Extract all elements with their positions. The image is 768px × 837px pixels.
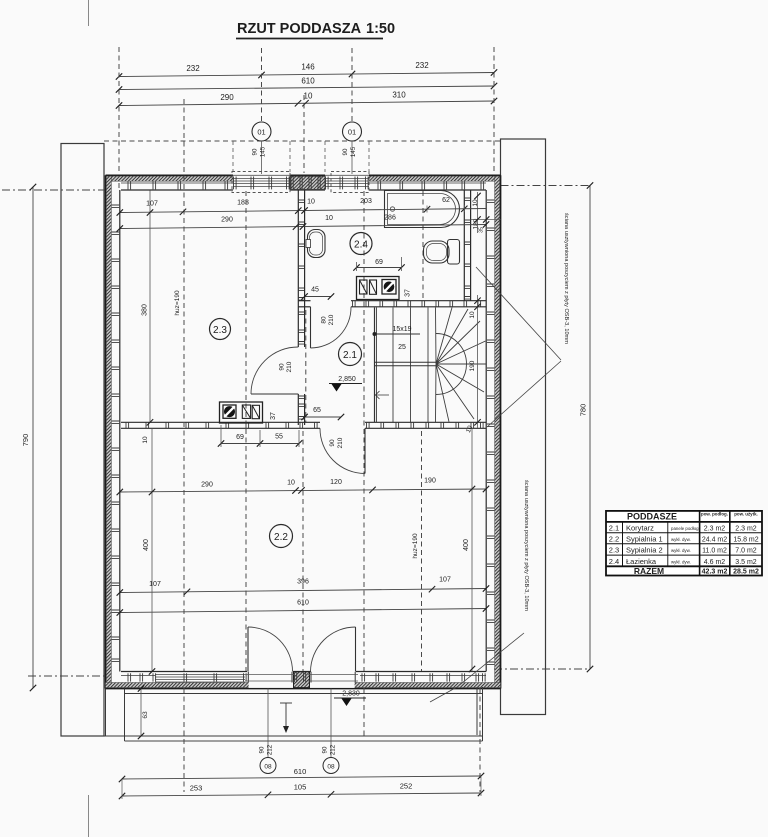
svg-text:RAZEM: RAZEM xyxy=(634,566,664,576)
svg-text:2.1: 2.1 xyxy=(343,350,357,361)
svg-text:15.8 m2: 15.8 m2 xyxy=(733,537,758,544)
svg-text:105: 105 xyxy=(294,783,307,792)
svg-text:610: 610 xyxy=(301,77,315,86)
svg-text:45: 45 xyxy=(311,287,319,294)
svg-text:252: 252 xyxy=(400,782,413,791)
svg-text:10: 10 xyxy=(142,436,149,444)
svg-text:780: 780 xyxy=(579,404,588,417)
svg-text:146: 146 xyxy=(301,63,315,72)
svg-text:24.4 m2: 24.4 m2 xyxy=(702,537,727,544)
svg-text:90: 90 xyxy=(259,746,266,753)
svg-text:203: 203 xyxy=(360,198,372,205)
svg-text:ściana usztywniona poszyciem z: ściana usztywniona poszyciem z płyty OSB… xyxy=(523,480,529,611)
svg-text:90: 90 xyxy=(342,148,349,155)
svg-text:80: 80 xyxy=(321,316,328,324)
svg-text:10: 10 xyxy=(472,199,479,207)
svg-text:7.0 m2: 7.0 m2 xyxy=(735,548,757,555)
svg-text:400: 400 xyxy=(143,539,150,551)
svg-text:183: 183 xyxy=(237,200,249,207)
svg-text:232: 232 xyxy=(415,61,429,70)
svg-text:Korytarz: Korytarz xyxy=(626,524,654,533)
svg-text:253: 253 xyxy=(190,784,203,793)
svg-text:panele podłog.: panele podłog. xyxy=(671,526,700,531)
svg-text:210: 210 xyxy=(337,437,344,448)
svg-text:212: 212 xyxy=(329,744,336,755)
svg-text:1:50: 1:50 xyxy=(366,21,395,37)
svg-text:01: 01 xyxy=(348,128,356,137)
svg-text:huz=190: huz=190 xyxy=(174,290,181,316)
svg-text:11.0 m2: 11.0 m2 xyxy=(702,548,727,555)
svg-text:wykł. dyw.: wykł. dyw. xyxy=(671,559,691,564)
svg-text:290: 290 xyxy=(220,93,234,102)
svg-text:10: 10 xyxy=(307,199,315,206)
svg-text:120: 120 xyxy=(330,479,342,486)
svg-text:90: 90 xyxy=(322,746,329,753)
svg-text:15x19: 15x19 xyxy=(392,326,411,333)
svg-text:610: 610 xyxy=(297,600,309,607)
svg-text:2.3: 2.3 xyxy=(213,325,227,336)
svg-text:212: 212 xyxy=(266,744,273,755)
svg-text:69: 69 xyxy=(375,259,383,266)
svg-text:286: 286 xyxy=(384,215,396,222)
svg-text:10: 10 xyxy=(304,92,313,101)
svg-text:107: 107 xyxy=(146,201,158,208)
svg-text:RZUT PODDASZA: RZUT PODDASZA xyxy=(237,21,362,37)
svg-text:63: 63 xyxy=(142,711,149,719)
svg-text:08: 08 xyxy=(264,763,272,770)
svg-text:08: 08 xyxy=(327,763,335,770)
svg-text:2.2: 2.2 xyxy=(274,532,288,543)
svg-text:2.2: 2.2 xyxy=(609,535,619,544)
svg-text:2.4: 2.4 xyxy=(354,239,368,250)
svg-text:210: 210 xyxy=(328,314,335,325)
svg-text:3.5 m2: 3.5 m2 xyxy=(735,559,757,566)
svg-text:2.3: 2.3 xyxy=(609,546,619,555)
svg-text:2.4: 2.4 xyxy=(609,557,619,566)
svg-text:01: 01 xyxy=(257,128,265,137)
svg-text:145: 145 xyxy=(350,146,357,157)
svg-text:232: 232 xyxy=(186,64,200,73)
svg-text:Sypialnia 2: Sypialnia 2 xyxy=(626,546,663,555)
svg-text:65: 65 xyxy=(313,407,321,414)
svg-text:380: 380 xyxy=(142,304,149,316)
svg-text:PODDASZE: PODDASZE xyxy=(627,512,677,522)
svg-text:37: 37 xyxy=(270,412,277,420)
svg-text:90: 90 xyxy=(252,148,259,155)
svg-text:190: 190 xyxy=(469,360,476,371)
svg-text:145: 145 xyxy=(259,146,266,157)
svg-text:55: 55 xyxy=(275,434,283,441)
svg-text:2,850: 2,850 xyxy=(338,376,356,383)
svg-text:396: 396 xyxy=(297,579,309,586)
svg-text:4.6 m2: 4.6 m2 xyxy=(704,559,726,566)
svg-text:310: 310 xyxy=(392,91,406,100)
svg-text:Sypialnia 1: Sypialnia 1 xyxy=(626,535,663,544)
svg-text:37: 37 xyxy=(405,289,412,297)
svg-text:69: 69 xyxy=(236,434,244,441)
svg-text:huz=190: huz=190 xyxy=(412,533,419,559)
svg-text:10: 10 xyxy=(287,480,295,487)
svg-text:wykł. dyw.: wykł. dyw. xyxy=(671,548,691,553)
svg-text:2.1: 2.1 xyxy=(609,524,619,533)
svg-text:2.3 m2: 2.3 m2 xyxy=(735,526,757,533)
svg-text:107: 107 xyxy=(439,577,451,584)
svg-text:62: 62 xyxy=(442,197,450,204)
svg-text:42.3 m2: 42.3 m2 xyxy=(702,569,728,576)
svg-text:90: 90 xyxy=(278,363,285,371)
svg-text:ściana usztywniona poszyciem z: ściana usztywniona poszyciem z płyty OSB… xyxy=(563,213,569,344)
svg-text:790: 790 xyxy=(21,434,30,447)
svg-text:90: 90 xyxy=(329,439,336,447)
svg-text:10: 10 xyxy=(325,215,333,222)
svg-text:2.3 m2: 2.3 m2 xyxy=(704,526,726,533)
svg-text:Łazienka: Łazienka xyxy=(626,557,657,566)
svg-text:290: 290 xyxy=(221,217,233,224)
svg-text:pow. podłog.: pow. podłog. xyxy=(701,512,728,517)
svg-text:290: 290 xyxy=(201,482,213,489)
svg-text:400: 400 xyxy=(463,539,470,551)
svg-text:107: 107 xyxy=(149,581,161,588)
svg-text:210: 210 xyxy=(286,361,293,372)
svg-text:35: 35 xyxy=(479,227,485,233)
svg-text:190: 190 xyxy=(424,478,436,485)
svg-text:28.5 m2: 28.5 m2 xyxy=(733,569,759,576)
svg-text:610: 610 xyxy=(294,767,307,776)
svg-text:pow. użytk.: pow. użytk. xyxy=(734,512,758,517)
svg-text:wykł. dyw.: wykł. dyw. xyxy=(671,537,691,542)
svg-text:25: 25 xyxy=(398,344,406,351)
svg-text:10: 10 xyxy=(469,311,476,319)
